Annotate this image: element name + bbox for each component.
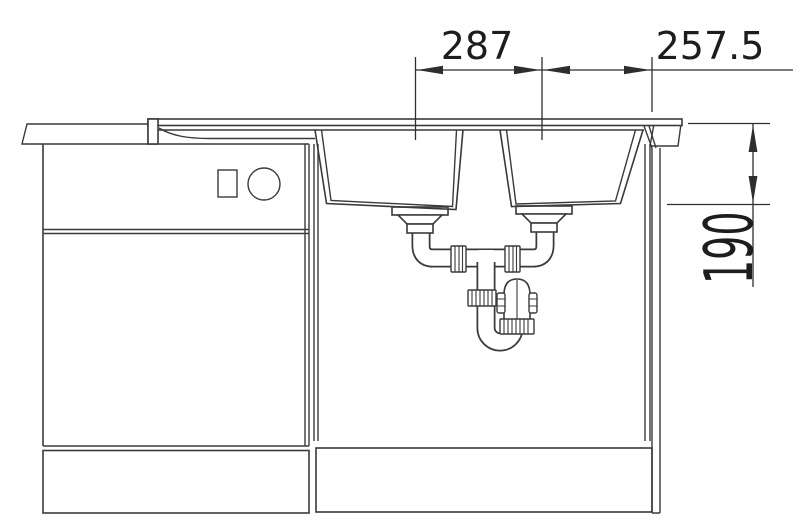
sink-bowl-2 — [500, 130, 643, 207]
dimension-vertical-depth: 190 — [667, 124, 770, 288]
technical-drawing-canvas: 287 257.5 190 — [0, 0, 800, 532]
wing-nut-right — [529, 293, 537, 313]
dimension-label-190: 190 — [691, 211, 768, 284]
sink-cabinet-plinth — [316, 448, 652, 512]
left-cabinet-plinth — [43, 451, 309, 514]
trap-outlet-assembly — [497, 279, 537, 334]
cabinet-knob-symbol — [248, 168, 280, 200]
outlet-coupling-nut — [500, 319, 534, 334]
sink-elevation-drawing: 287 257.5 190 — [0, 0, 800, 532]
sink-left-edge — [148, 119, 158, 144]
sink-bowl-1 — [315, 130, 463, 210]
countertop-left-section — [22, 124, 148, 144]
drain-flange-bowl-1 — [392, 207, 448, 233]
drain-flange-bowl-2 — [516, 206, 572, 232]
dimension-label-287: 287 — [441, 24, 514, 68]
dimension-label-257-5: 257.5 — [656, 24, 765, 68]
wing-nut-left — [497, 293, 505, 313]
cabinet-rect-symbol — [218, 170, 237, 197]
left-cabinet — [43, 144, 309, 513]
